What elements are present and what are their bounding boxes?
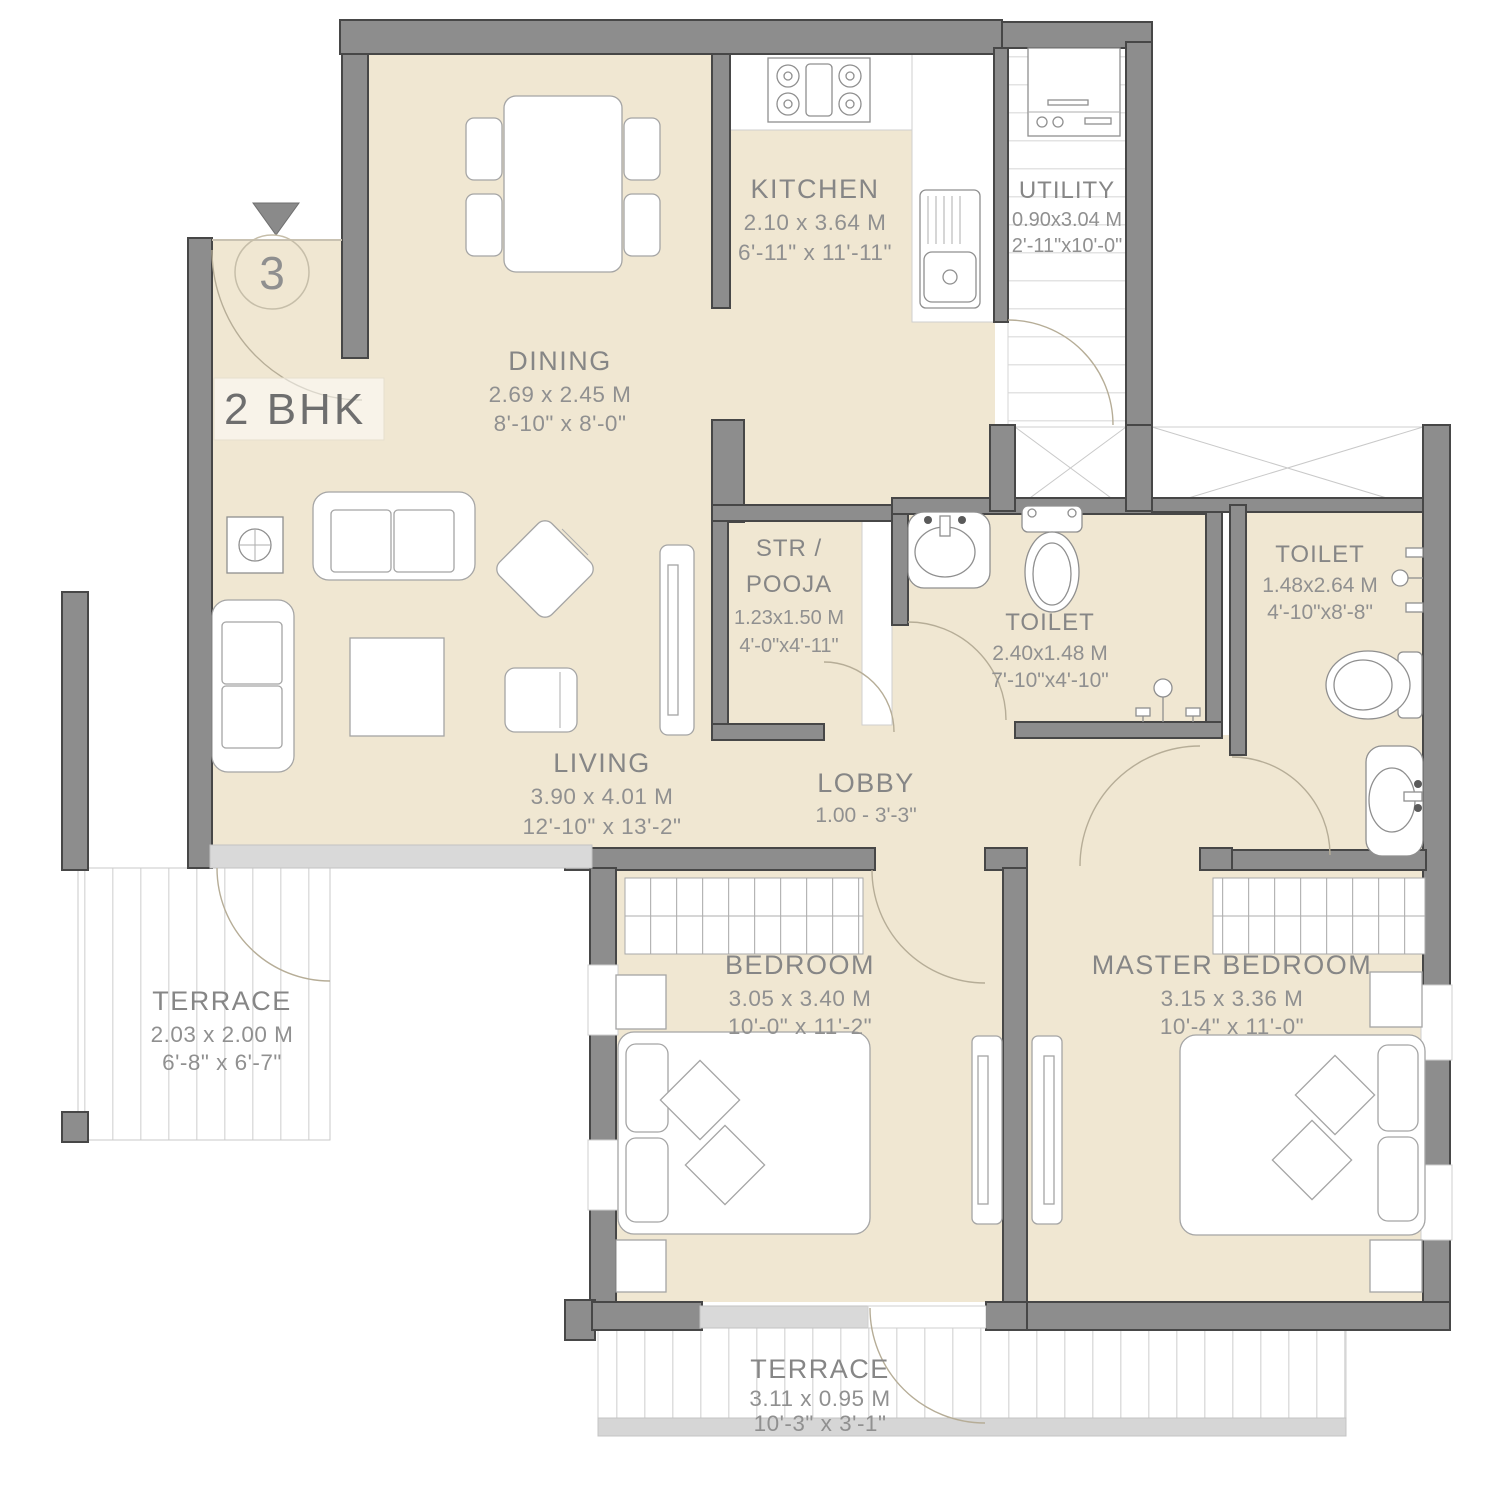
terrace-bottom-railing <box>598 1418 1346 1436</box>
entry-arrow-icon <box>253 203 299 235</box>
svg-text:3.11 x 0.95 M: 3.11 x 0.95 M <box>749 1386 890 1411</box>
coffee-table-icon <box>350 638 444 736</box>
bed-2-icon <box>1180 1035 1425 1235</box>
room-label-toilet-master: TOILET 1.48x2.64 M 4'-10"x8'-8" <box>1262 541 1378 624</box>
room-label-terrace-left: TERRACE 2.03 x 2.00 M 6'-8" x 6'-7" <box>151 986 294 1075</box>
svg-text:TERRACE: TERRACE <box>750 1354 890 1384</box>
svg-text:UTILITY: UTILITY <box>1019 177 1115 204</box>
floor-plan: 3 2 BHK DINING 2.69 x 2.45 M 8'-10" x 8'… <box>0 0 1500 1500</box>
svg-text:4'-0"x4'-11": 4'-0"x4'-11" <box>739 635 838 657</box>
nightstand-icon <box>616 975 666 1029</box>
room-label-lobby: LOBBY 1.00 - 3'-3" <box>815 768 916 827</box>
room-label-utility: UTILITY 0.90x3.04 M 2'-11"x10'-0" <box>1012 177 1122 257</box>
washbasin-icon <box>908 512 990 588</box>
toilet-icon <box>1022 506 1082 612</box>
entry-number: 3 <box>259 247 285 299</box>
svg-text:TOILET: TOILET <box>1005 609 1095 636</box>
kitchen-sink-icon <box>920 190 980 308</box>
svg-text:LOBBY: LOBBY <box>817 768 915 798</box>
svg-text:4'-10"x8'-8": 4'-10"x8'-8" <box>1267 601 1373 624</box>
svg-text:2.69 x 2.45 M: 2.69 x 2.45 M <box>489 382 632 407</box>
unit-type-label: 2 BHK <box>224 385 366 434</box>
floor-plan-page: 3 2 BHK DINING 2.69 x 2.45 M 8'-10" x 8'… <box>0 0 1500 1500</box>
svg-text:6'-11" x 11'-11": 6'-11" x 11'-11" <box>738 240 892 265</box>
washbasin-2-icon <box>1366 746 1423 856</box>
room-label-dining: DINING 2.69 x 2.45 M 8'-10" x 8'-0" <box>489 346 632 436</box>
washing-machine-icon <box>1028 48 1120 136</box>
svg-text:8'-10" x 8'-0": 8'-10" x 8'-0" <box>494 411 627 436</box>
str-pooja-door-opening <box>862 521 892 725</box>
svg-text:KITCHEN: KITCHEN <box>750 174 879 204</box>
svg-text:2.10 x 3.64 M: 2.10 x 3.64 M <box>744 210 887 235</box>
svg-text:10'-4" x 11'-0": 10'-4" x 11'-0" <box>1160 1014 1304 1039</box>
ottoman-icon <box>505 668 577 732</box>
room-label-toilet-common: TOILET 2.40x1.48 M 7'-10"x4'-10" <box>991 609 1109 692</box>
dresser-icon <box>972 1036 1002 1224</box>
nightstand-3-icon <box>1370 972 1422 1027</box>
room-label-kitchen: KITCHEN 2.10 x 3.64 M 6'-11" x 11'-11" <box>738 174 892 265</box>
svg-text:2.03 x 2.00 M: 2.03 x 2.00 M <box>151 1022 294 1047</box>
bedroom-window-2 <box>588 1140 618 1210</box>
svg-text:3.05 x 3.40 M: 3.05 x 3.40 M <box>729 986 872 1011</box>
svg-text:7'-10"x4'-10": 7'-10"x4'-10" <box>991 669 1109 692</box>
master-window <box>1421 985 1452 1060</box>
svg-text:2'-11"x10'-0": 2'-11"x10'-0" <box>1012 235 1122 257</box>
svg-text:STR /: STR / <box>756 535 822 562</box>
nightstand-2-icon <box>616 1240 666 1292</box>
svg-text:MASTER BEDROOM: MASTER BEDROOM <box>1092 950 1373 980</box>
toilet-2-icon <box>1326 651 1422 719</box>
terrace-door-opening <box>868 1306 986 1328</box>
svg-text:6'-8" x 6'-7": 6'-8" x 6'-7" <box>162 1050 282 1075</box>
svg-text:3.15 x 3.36 M: 3.15 x 3.36 M <box>1161 986 1304 1011</box>
svg-text:TERRACE: TERRACE <box>152 986 292 1016</box>
bedroom-window <box>588 965 618 1035</box>
wardrobe-icon <box>625 878 863 954</box>
wardrobe-2-icon <box>1213 878 1425 954</box>
planter-icon <box>227 517 283 573</box>
stove-icon <box>768 58 870 122</box>
room-lobby-floor <box>830 735 1230 868</box>
svg-text:1.00 - 3'-3": 1.00 - 3'-3" <box>815 804 916 827</box>
svg-text:1.23x1.50 M: 1.23x1.50 M <box>734 607 844 629</box>
svg-text:2.40x1.48 M: 2.40x1.48 M <box>992 642 1108 665</box>
svg-text:1.48x2.64 M: 1.48x2.64 M <box>1262 574 1378 597</box>
tv-unit-icon <box>660 545 694 735</box>
bedroom-terrace-sill <box>700 1306 868 1328</box>
room-label-bedroom: BEDROOM 3.05 x 3.40 M 10'-0" x 11'-2" <box>725 950 875 1039</box>
bed-icon <box>618 1032 870 1234</box>
svg-text:DINING: DINING <box>508 346 612 376</box>
sofa-icon <box>313 492 475 580</box>
nightstand-4-icon <box>1370 1240 1422 1292</box>
svg-text:LIVING: LIVING <box>553 748 651 778</box>
svg-text:BEDROOM: BEDROOM <box>725 950 875 980</box>
svg-text:10'-0" x 11'-2": 10'-0" x 11'-2" <box>728 1014 872 1039</box>
svg-text:12'-10" x 13'-2": 12'-10" x 13'-2" <box>523 814 682 839</box>
svg-text:10'-3" x 3'-1": 10'-3" x 3'-1" <box>754 1411 887 1436</box>
svg-text:3.90 x 4.01 M: 3.90 x 4.01 M <box>531 784 674 809</box>
dresser-2-icon <box>1032 1036 1062 1224</box>
svg-text:0.90x3.04 M: 0.90x3.04 M <box>1012 209 1122 231</box>
room-label-terrace-bottom: TERRACE 3.11 x 0.95 M 10'-3" x 3'-1" <box>749 1354 890 1436</box>
svg-text:TOILET: TOILET <box>1275 541 1365 568</box>
sofa-2-icon <box>212 600 294 772</box>
svg-text:POOJA: POOJA <box>746 571 832 598</box>
living-south-ledge <box>210 845 592 868</box>
